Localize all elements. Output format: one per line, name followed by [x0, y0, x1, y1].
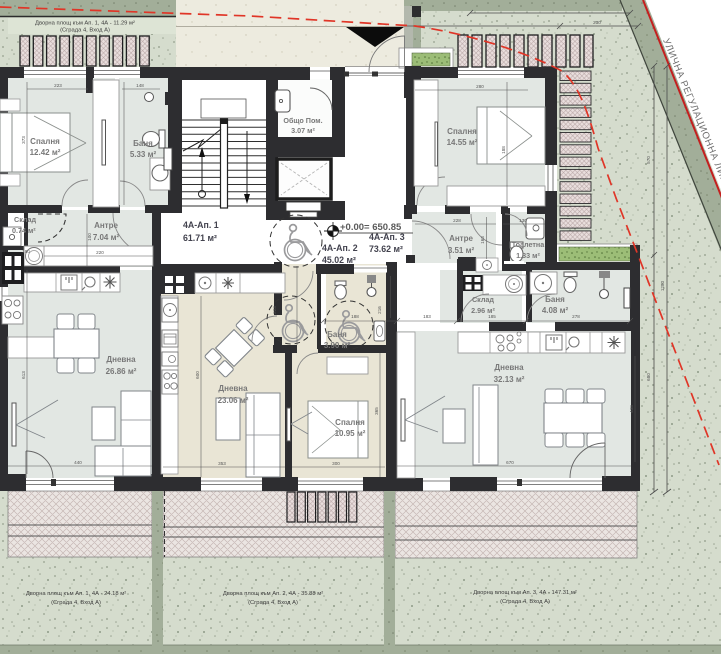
svg-text:Антре: Антре — [449, 234, 473, 243]
svg-text:180: 180 — [22, 249, 30, 254]
svg-text:300: 300 — [332, 461, 340, 466]
svg-text:Баня: Баня — [327, 330, 347, 339]
svg-text:3.90 м²: 3.90 м² — [324, 341, 351, 350]
svg-text:1280: 1280 — [660, 280, 665, 291]
svg-text:Склад: Склад — [14, 215, 36, 224]
svg-text:438: 438 — [629, 405, 634, 413]
svg-text:183: 183 — [423, 314, 431, 319]
svg-text:45.02 м²: 45.02 м² — [322, 255, 356, 265]
svg-text:188: 188 — [351, 314, 359, 319]
svg-text:12.42 м²: 12.42 м² — [30, 148, 61, 157]
svg-text:4А-Ап. 3: 4А-Ап. 3 — [369, 232, 405, 242]
svg-text:3.51 м²: 3.51 м² — [448, 246, 475, 255]
svg-text:600: 600 — [195, 371, 200, 379]
svg-text:188: 188 — [501, 146, 506, 154]
svg-text:440: 440 — [74, 460, 82, 465]
svg-text:365: 365 — [374, 407, 379, 415]
svg-text:680: 680 — [646, 373, 651, 381]
svg-text:1.33 м²: 1.33 м² — [516, 251, 540, 260]
svg-text:Дневна: Дневна — [218, 384, 248, 393]
svg-text:Спалня: Спалня — [30, 137, 60, 146]
svg-text:4А-Ап. 2: 4А-Ап. 2 — [322, 243, 358, 253]
svg-text:185: 185 — [488, 314, 496, 319]
svg-text:(Сграда 4, Вход А): (Сграда 4, Вход А) — [500, 599, 550, 605]
svg-text:373: 373 — [21, 136, 26, 144]
svg-text:26.86 м²: 26.86 м² — [106, 367, 137, 376]
svg-text:4.08 м²: 4.08 м² — [542, 306, 569, 315]
svg-text:130: 130 — [519, 218, 527, 223]
svg-text:Спалня: Спалня — [335, 418, 365, 427]
svg-text:(Сграда 4, Вход А): (Сграда 4, Вход А) — [248, 600, 298, 606]
svg-text:Дневна: Дневна — [494, 363, 524, 372]
svg-text:5.33 м²: 5.33 м² — [130, 150, 157, 159]
svg-text:Дневна: Дневна — [106, 355, 136, 364]
svg-text:670: 670 — [506, 460, 514, 465]
svg-text:570: 570 — [646, 156, 651, 164]
svg-text:278: 278 — [572, 314, 580, 319]
svg-text:353: 353 — [218, 461, 226, 466]
svg-text:10.95 м²: 10.95 м² — [335, 429, 366, 438]
svg-text:14.55 м²: 14.55 м² — [447, 138, 478, 147]
svg-text:Баня: Баня — [545, 295, 565, 304]
svg-text:163: 163 — [480, 236, 485, 244]
svg-text:Антре: Антре — [94, 221, 118, 230]
svg-text:7.04 м²: 7.04 м² — [93, 233, 120, 242]
svg-text:148: 148 — [136, 83, 144, 88]
svg-text:Общо Пом.: Общо Пом. — [283, 116, 322, 125]
svg-text:Склад: Склад — [472, 295, 494, 304]
svg-text:223: 223 — [54, 83, 62, 88]
svg-text:230: 230 — [593, 20, 601, 25]
svg-text:Спалня: Спалня — [447, 127, 477, 136]
svg-text:280: 280 — [476, 84, 484, 89]
svg-text:Тоалетна: Тоалетна — [512, 240, 546, 249]
svg-text:4А-Ап. 1: 4А-Ап. 1 — [183, 220, 219, 230]
svg-text:73.62 м²: 73.62 м² — [369, 244, 403, 254]
svg-text:61.71 м²: 61.71 м² — [183, 233, 217, 243]
svg-text:32.13 м²: 32.13 м² — [494, 375, 525, 384]
svg-text:(Сграда 4, Вход А): (Сграда 4, Вход А) — [60, 28, 110, 34]
svg-text:Баня: Баня — [133, 139, 153, 148]
svg-text:223: 223 — [272, 306, 277, 314]
svg-text:216: 216 — [377, 306, 382, 314]
svg-text:220: 220 — [96, 250, 104, 255]
svg-text:Дворна площ към Ап. 2, 4А - 35: Дворна площ към Ап. 2, 4А - 35.88 м² — [223, 591, 323, 597]
svg-text:Дворна площ към Ап. 1, 4А - 11: Дворна площ към Ап. 1, 4А - 11.29 м² — [35, 21, 135, 27]
svg-text:Дворна площ към Ап. 3, 4А - 14: Дворна площ към Ап. 3, 4А - 147.31 м² — [473, 590, 577, 596]
svg-text:0.74 м²: 0.74 м² — [12, 226, 36, 235]
svg-text:613: 613 — [21, 371, 26, 379]
svg-text:23.06 м²: 23.06 м² — [218, 396, 249, 405]
svg-text:3.07 м²: 3.07 м² — [291, 126, 315, 135]
svg-text:Дворна площ към Ап. 1, 4А - 24: Дворна площ към Ап. 1, 4А - 24.18 м² — [26, 591, 126, 597]
svg-text:100: 100 — [87, 233, 92, 241]
svg-text:228: 228 — [453, 218, 461, 223]
svg-text:(Сграда 4, Вход А): (Сграда 4, Вход А) — [51, 600, 101, 606]
